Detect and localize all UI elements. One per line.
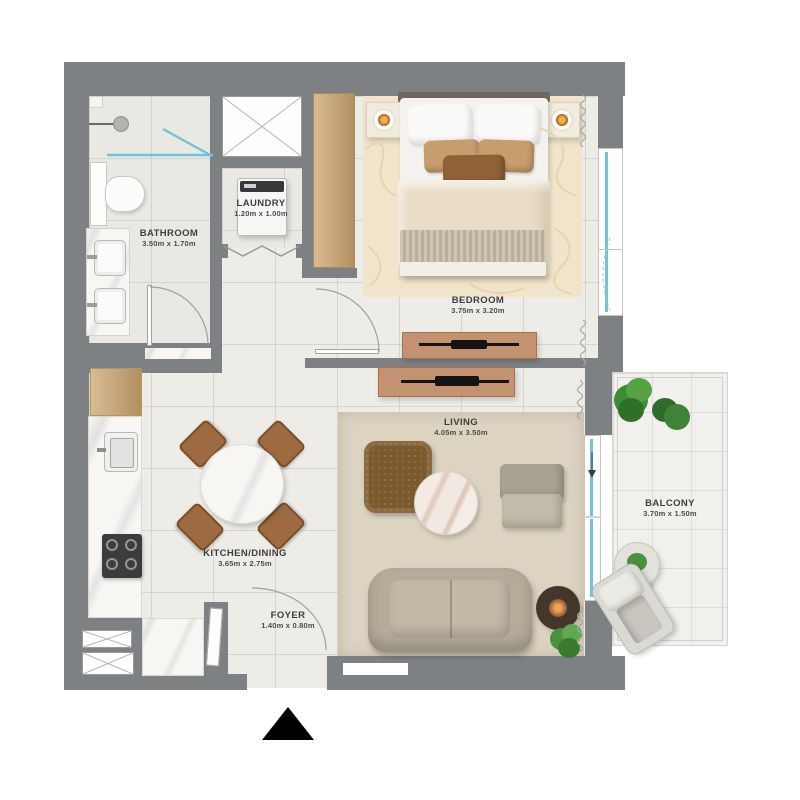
wall-laundry-stub-left: [222, 244, 228, 258]
wall-top: [64, 62, 625, 96]
wardrobe: [313, 93, 355, 268]
armchair-seat: [502, 494, 562, 528]
kitchen-dining-label: KITCHEN/DINING 3.65m x 2.75m: [203, 549, 287, 569]
balcony-label: BALCONY 3.70m x 1.50m: [643, 499, 696, 519]
kitchen-faucet-icon: [97, 448, 106, 452]
sink-icon: [94, 240, 126, 276]
plant-icon: [548, 622, 586, 660]
faucet-icon: [87, 303, 97, 307]
burner: [125, 539, 137, 551]
room-dims: 3.65m x 2.75m: [203, 560, 287, 569]
wall-bedroom-right-upper: [598, 96, 623, 148]
wall-left: [64, 62, 89, 690]
nightstand: [544, 102, 580, 138]
foyer-label: FOYER 1.40m x 0.80m: [261, 611, 314, 631]
nightstand: [366, 102, 402, 138]
bed-throw-blanket: [400, 230, 546, 264]
bedroom-window-mullion: [599, 249, 622, 250]
wall-shaft-laundry-divider: [222, 157, 302, 168]
room-dims: 3.50m x 1.70m: [140, 240, 198, 249]
north-arrow-icon: [262, 707, 314, 740]
living-label: LIVING 4.05m x 3.50m: [434, 418, 487, 438]
wall-bottom-recess: [343, 663, 408, 675]
toilet-icon: [105, 176, 145, 212]
sofa-cushion-seam: [450, 580, 452, 638]
bed: [400, 98, 548, 278]
lamp-icon: [551, 109, 573, 131]
wall-living-right-upper: [585, 368, 612, 435]
plant-icon: [652, 394, 692, 434]
room-dims: 4.05m x 3.50m: [434, 429, 487, 438]
sliding-door-glass-upper: [590, 439, 593, 517]
armchair: [498, 464, 566, 528]
sofa: [368, 568, 532, 652]
washing-machine-display: [244, 184, 256, 188]
bathroom-door-leaf: [147, 285, 152, 346]
shower-head-icon: [113, 116, 129, 132]
bedroom-dresser: [402, 332, 537, 359]
dining-table: [200, 444, 284, 524]
bed-sheet-edge: [400, 262, 546, 276]
tv-console: [378, 367, 515, 397]
kitchen-counter-return: [142, 618, 204, 676]
burner: [106, 539, 118, 551]
room-dims: 3.70m x 1.50m: [643, 510, 696, 519]
shaft-box: [82, 652, 134, 675]
burner: [106, 558, 118, 570]
laundry-label: LAUNDRY 1.20m x 1.00m: [234, 199, 287, 219]
refrigerator: [90, 368, 142, 416]
floor-plan: BATHROOM 3.50m x 1.70m LAUNDRY 1.20m x 1…: [0, 0, 800, 800]
tv-soundbar: [401, 380, 509, 383]
sink-icon: [94, 288, 126, 324]
burner: [125, 558, 137, 570]
room-dims: 1.40m x 0.80m: [261, 622, 314, 631]
bathroom-label: BATHROOM 3.50m x 1.70m: [140, 229, 198, 249]
faucet-icon: [87, 255, 97, 259]
side-table-lamp: [549, 599, 567, 617]
bedroom-label: BEDROOM 3.75m x 3.20m: [451, 296, 504, 316]
bedroom-window: [598, 148, 623, 316]
wall-bedroom-door-stub: [305, 268, 357, 278]
wall-bathroom-right: [210, 96, 222, 373]
sliding-door-meeting-rail: [584, 516, 601, 518]
wall-bedroom-left: [302, 62, 313, 278]
shaft-box: [82, 630, 132, 648]
lamp-icon: [373, 109, 395, 131]
room-dims: 1.20m x 1.00m: [234, 210, 287, 219]
bathroom-wall-niche: [89, 96, 103, 108]
kitchen-sink-icon: [104, 432, 138, 472]
bedroom-door-leaf: [315, 349, 379, 354]
tv-soundbar: [419, 343, 519, 346]
sink-basin: [110, 438, 134, 468]
bedroom-window-glass: [605, 152, 608, 312]
lamp-glow: [556, 114, 568, 126]
coffee-table: [414, 471, 478, 535]
bathroom-door-threshold: [145, 348, 211, 359]
room-dims: 3.75m x 3.20m: [451, 307, 504, 316]
hob-icon: [102, 534, 142, 578]
wall-laundry-stub-right: [296, 244, 302, 258]
shaft-box: [222, 96, 302, 157]
lamp-glow: [378, 114, 390, 126]
